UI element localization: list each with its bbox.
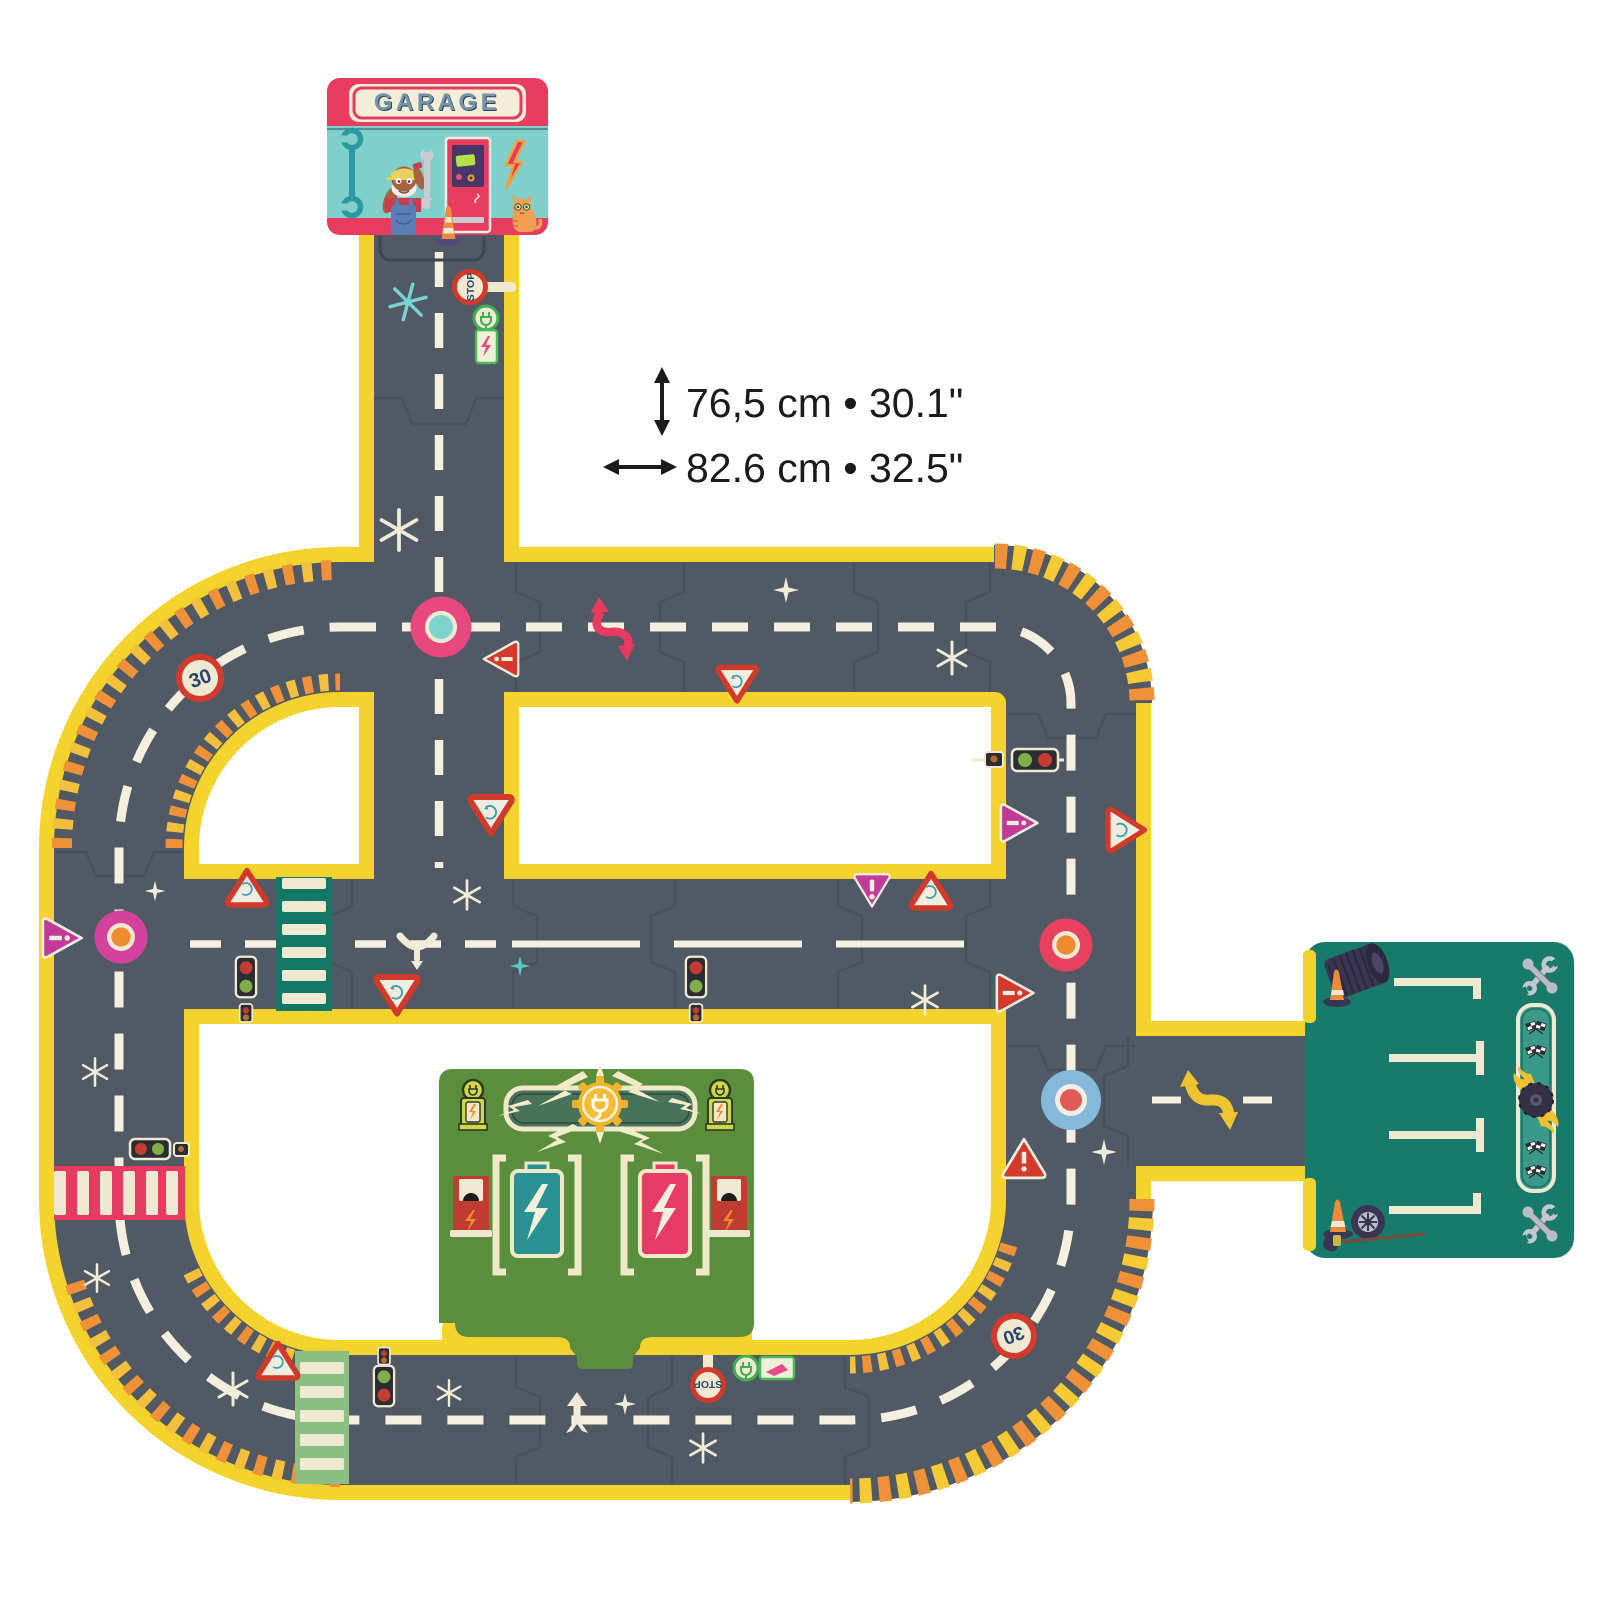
svg-text:GARAGE: GARAGE	[374, 89, 500, 116]
svg-text:82.6 cm • 32.5": 82.6 cm • 32.5"	[686, 445, 963, 491]
svg-text:76,5 cm • 30.1": 76,5 cm • 30.1"	[686, 380, 963, 426]
